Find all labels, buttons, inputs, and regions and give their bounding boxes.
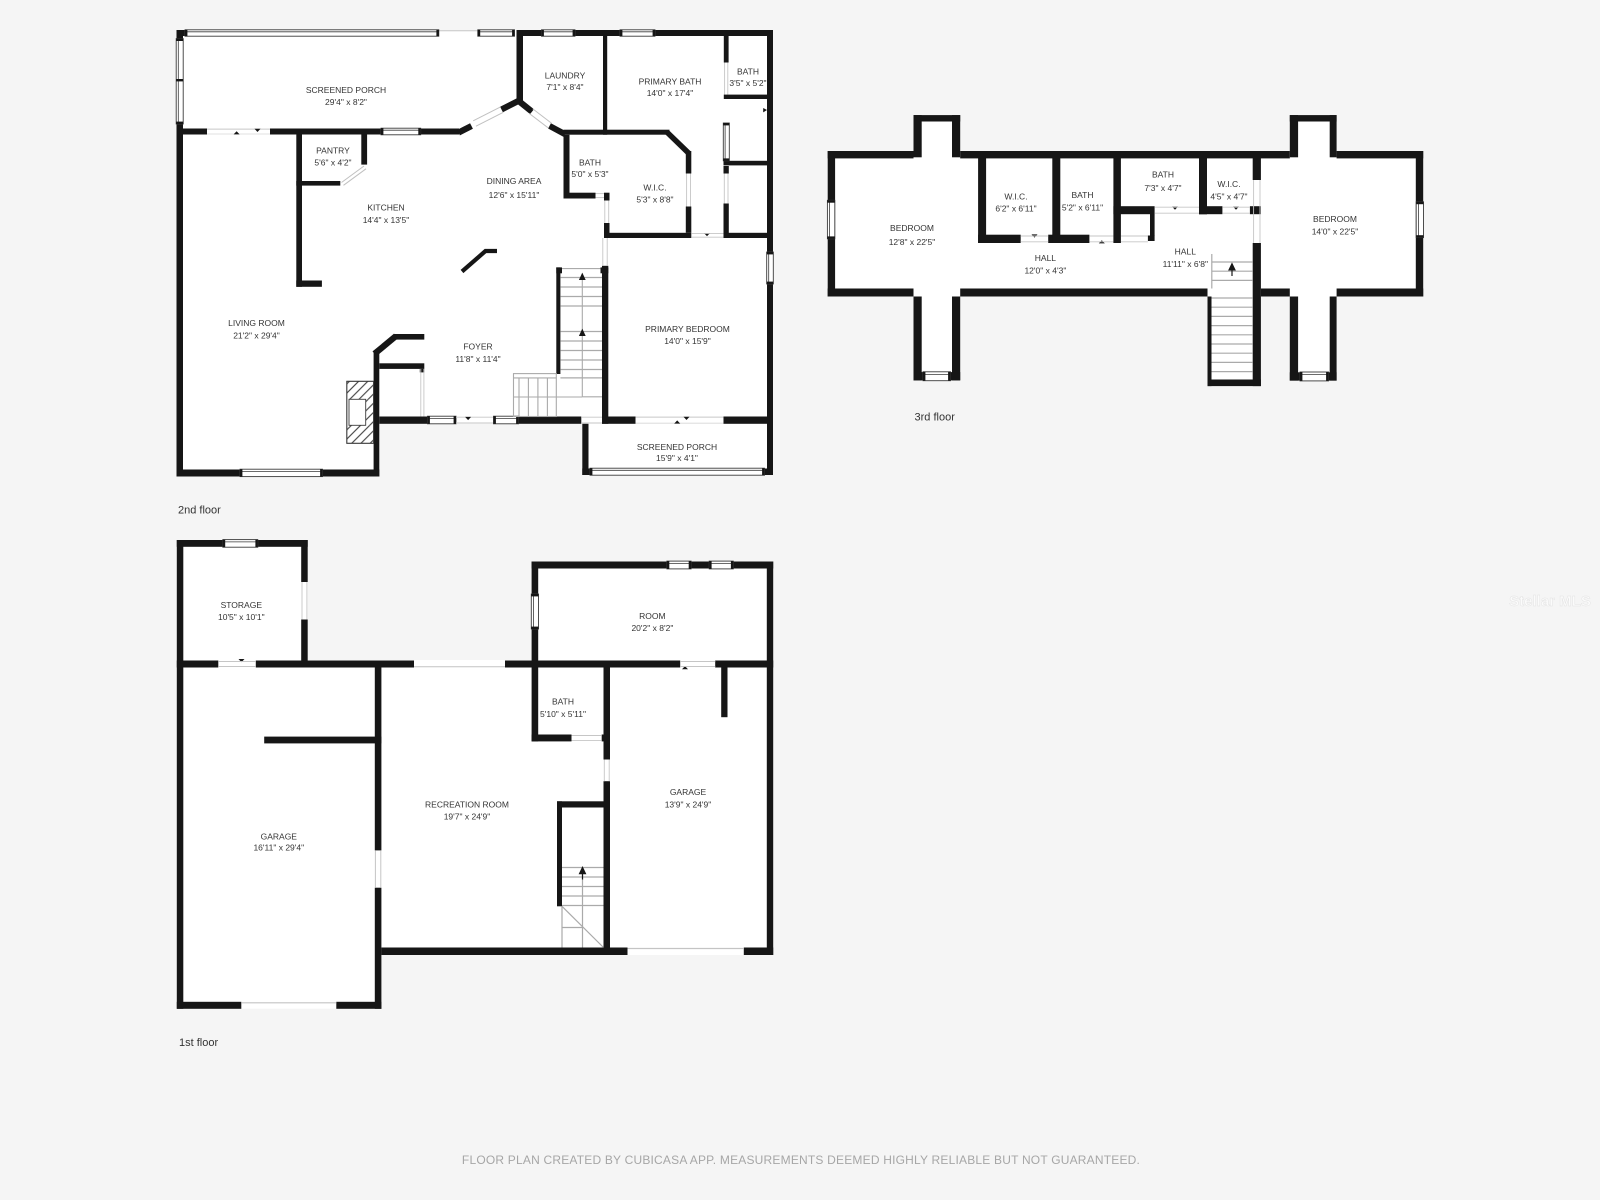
svg-text:BEDROOM: BEDROOM bbox=[890, 223, 934, 233]
svg-text:BEDROOM: BEDROOM bbox=[1313, 214, 1357, 224]
svg-text:1st floor: 1st floor bbox=[179, 1037, 218, 1049]
svg-text:7'3" x 4'7": 7'3" x 4'7" bbox=[1144, 183, 1181, 193]
svg-text:LAUNDRY: LAUNDRY bbox=[545, 71, 586, 81]
svg-text:SCREENED PORCH: SCREENED PORCH bbox=[637, 442, 717, 452]
svg-text:W.I.C.: W.I.C. bbox=[1004, 191, 1027, 201]
svg-text:14'0" x 17'4": 14'0" x 17'4" bbox=[647, 88, 694, 98]
svg-text:5'0" x 5'3": 5'0" x 5'3" bbox=[571, 169, 608, 179]
svg-text:FLOOR PLAN CREATED BY CUBICASA: FLOOR PLAN CREATED BY CUBICASA APP. MEAS… bbox=[462, 1153, 1140, 1167]
svg-text:12'6" x 15'11": 12'6" x 15'11" bbox=[489, 190, 540, 200]
svg-text:BATH: BATH bbox=[552, 697, 574, 707]
svg-text:12'0" x 4'3": 12'0" x 4'3" bbox=[1024, 266, 1066, 276]
svg-text:5'2" x 6'11": 5'2" x 6'11" bbox=[1062, 202, 1103, 212]
svg-text:2nd floor: 2nd floor bbox=[178, 505, 221, 517]
svg-text:14'0" x 22'5": 14'0" x 22'5" bbox=[1312, 227, 1359, 237]
svg-text:6'2" x 6'11": 6'2" x 6'11" bbox=[995, 204, 1036, 214]
svg-text:11'11" x 6'8": 11'11" x 6'8" bbox=[1163, 259, 1208, 269]
svg-text:GARAGE: GARAGE bbox=[261, 832, 298, 842]
svg-text:HALL: HALL bbox=[1175, 246, 1197, 256]
svg-text:BATH: BATH bbox=[1152, 170, 1174, 180]
svg-text:RECREATION ROOM: RECREATION ROOM bbox=[425, 799, 509, 809]
svg-text:W.I.C.: W.I.C. bbox=[643, 183, 666, 193]
svg-text:SCREENED PORCH: SCREENED PORCH bbox=[306, 85, 386, 95]
svg-text:PRIMARY BEDROOM: PRIMARY BEDROOM bbox=[645, 324, 730, 334]
svg-text:12'8" x 22'5": 12'8" x 22'5" bbox=[889, 237, 936, 247]
svg-text:Stellar MLS: Stellar MLS bbox=[1509, 593, 1591, 610]
svg-text:ROOM: ROOM bbox=[639, 611, 665, 621]
svg-text:4'5" x 4'7": 4'5" x 4'7" bbox=[1210, 192, 1247, 202]
svg-text:W.I.C.: W.I.C. bbox=[1217, 179, 1240, 189]
svg-text:3'5" x 5'2": 3'5" x 5'2" bbox=[729, 78, 766, 88]
svg-text:16'11" x 29'4": 16'11" x 29'4" bbox=[253, 843, 304, 853]
svg-text:STORAGE: STORAGE bbox=[221, 600, 263, 610]
svg-text:10'5" x 10'1": 10'5" x 10'1" bbox=[218, 612, 265, 622]
svg-text:7'1" x 8'4": 7'1" x 8'4" bbox=[546, 82, 583, 92]
svg-text:15'9" x 4'1": 15'9" x 4'1" bbox=[656, 453, 698, 463]
svg-text:14'0" x 15'9": 14'0" x 15'9" bbox=[664, 336, 711, 346]
svg-text:BATH: BATH bbox=[579, 158, 601, 168]
svg-text:BATH: BATH bbox=[737, 66, 759, 76]
svg-text:GARAGE: GARAGE bbox=[670, 787, 707, 797]
svg-text:FOYER: FOYER bbox=[463, 342, 492, 352]
svg-text:5'10" x 5'11": 5'10" x 5'11" bbox=[540, 709, 586, 719]
svg-text:KITCHEN: KITCHEN bbox=[367, 203, 404, 213]
svg-text:3rd floor: 3rd floor bbox=[915, 412, 956, 424]
svg-text:13'9" x 24'9": 13'9" x 24'9" bbox=[665, 800, 712, 810]
svg-text:PANTRY: PANTRY bbox=[316, 146, 350, 156]
svg-text:PRIMARY BATH: PRIMARY BATH bbox=[639, 77, 702, 87]
svg-text:5'3" x 8'8": 5'3" x 8'8" bbox=[636, 194, 673, 204]
svg-text:5'6" x 4'2": 5'6" x 4'2" bbox=[314, 158, 351, 168]
svg-text:HALL: HALL bbox=[1035, 253, 1057, 263]
svg-text:BATH: BATH bbox=[1071, 190, 1093, 200]
svg-text:19'7" x 24'9": 19'7" x 24'9" bbox=[444, 812, 491, 822]
svg-text:20'2" x 8'2": 20'2" x 8'2" bbox=[631, 623, 673, 633]
svg-text:29'4" x 8'2": 29'4" x 8'2" bbox=[325, 97, 367, 107]
svg-text:21'2" x 29'4": 21'2" x 29'4" bbox=[233, 330, 280, 340]
svg-text:LIVING ROOM: LIVING ROOM bbox=[228, 318, 285, 328]
svg-text:14'4" x 13'5": 14'4" x 13'5" bbox=[363, 215, 410, 225]
svg-text:DINING AREA: DINING AREA bbox=[487, 176, 542, 186]
svg-text:11'8" x 11'4": 11'8" x 11'4" bbox=[455, 354, 500, 364]
